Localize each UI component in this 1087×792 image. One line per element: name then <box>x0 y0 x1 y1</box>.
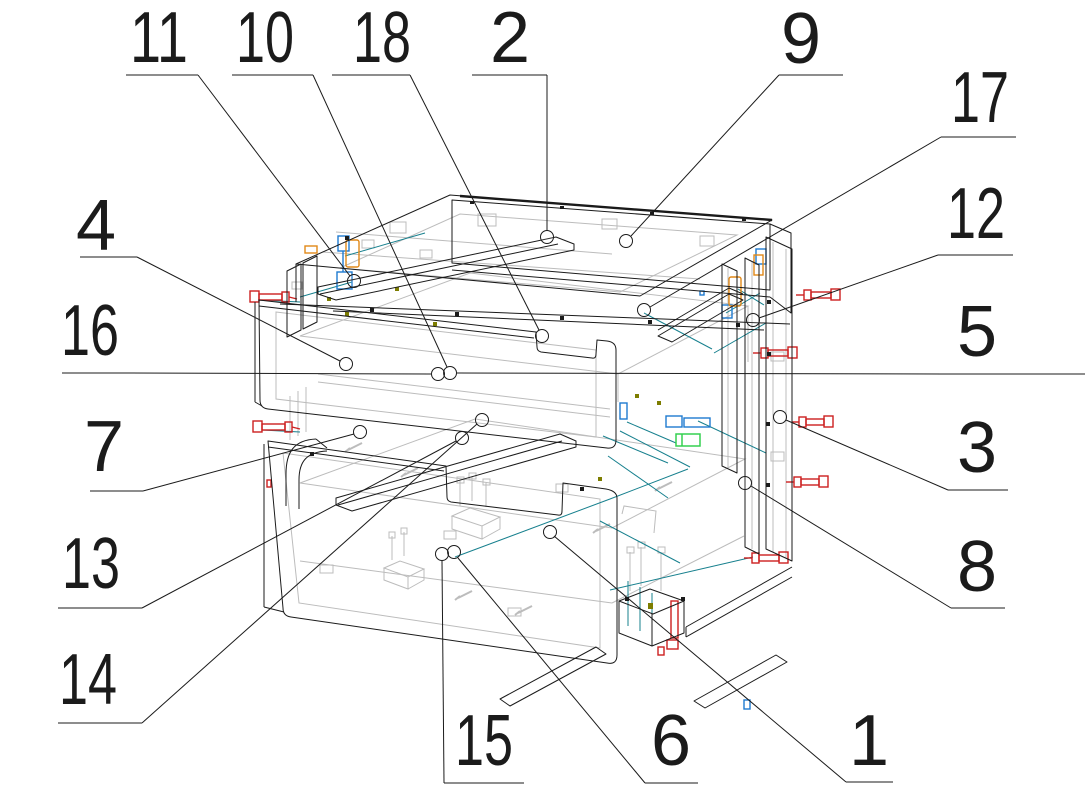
callout-14-number: 14 <box>59 640 117 720</box>
callout-3: 3 <box>774 408 1009 490</box>
callout-7-leader-line <box>143 434 354 491</box>
callout-8-target-circle <box>739 477 752 490</box>
handle-tube <box>286 439 327 509</box>
blue-fittings <box>337 236 766 709</box>
callout-16-number: 16 <box>61 291 119 371</box>
callout-4-number: 4 <box>76 186 116 266</box>
callout-15-number: 15 <box>455 701 513 781</box>
callout-12-target-circle <box>747 314 760 327</box>
callout-10-leader-line <box>313 75 447 367</box>
exploded-assembly-drawing: 123456789101112131415161718 <box>0 0 1087 792</box>
top-section <box>280 195 791 342</box>
callout-5-leader-line <box>457 373 945 374</box>
callout-5: 5 <box>457 292 1085 374</box>
bracket-red-icon <box>658 601 678 655</box>
screw-red-icon <box>250 291 297 302</box>
callout-8: 8 <box>739 477 1006 609</box>
callout-3-target-circle <box>774 411 787 424</box>
callout-14-target-circle <box>476 414 489 427</box>
callout-4-target-circle <box>340 358 353 371</box>
fitting-blue-icon <box>620 403 627 419</box>
callout-12-number: 12 <box>947 174 1005 254</box>
callout-6-number: 6 <box>651 701 691 781</box>
callout-7-number: 7 <box>84 407 124 487</box>
right-side-panel <box>722 237 792 561</box>
callout-17-leader-line <box>650 137 941 307</box>
callout-16-target-circle <box>432 368 445 381</box>
callout-15-target-circle <box>436 548 449 561</box>
callout-10-target-circle <box>444 367 457 380</box>
cabinet-structure <box>255 195 792 708</box>
callout-7-target-circle <box>354 426 367 439</box>
screw-red-icon <box>744 552 788 563</box>
callout-3-number: 3 <box>957 408 997 488</box>
callout-17-number: 17 <box>951 58 1009 138</box>
callout-15-leader-line <box>442 561 444 783</box>
bolt-blue-icon <box>666 416 682 427</box>
screw-red-icon <box>253 421 300 432</box>
fitting-orange-icon <box>305 246 317 253</box>
screw-red-icon <box>796 289 840 300</box>
fitting-green-icon <box>676 434 700 446</box>
callout-15: 15 <box>436 548 525 784</box>
middle-rail <box>336 434 576 511</box>
callout-1: 1 <box>544 526 894 783</box>
fitting-blue-icon <box>744 700 750 709</box>
callout-9-number: 9 <box>781 0 821 79</box>
callout-13-number: 13 <box>62 524 120 604</box>
callout-18-leader-line <box>410 75 539 330</box>
callout-2-number: 2 <box>490 0 530 78</box>
callout-1-target-circle <box>544 526 557 539</box>
callout-11-number: 11 <box>130 0 188 78</box>
callout-1-number: 1 <box>849 701 889 781</box>
callout-16: 16 <box>61 291 445 381</box>
callout-14-leader-line <box>142 424 477 723</box>
callout-10-number: 10 <box>236 0 294 78</box>
bottom-section <box>500 567 792 708</box>
callout-18-number: 18 <box>353 0 411 78</box>
callout-16-leader-line <box>130 373 431 374</box>
callout-layer: 123456789101112131415161718 <box>58 0 1085 783</box>
orange-fittings <box>305 240 763 306</box>
assembly-connector-lines <box>258 233 766 637</box>
callout-9-leader-line <box>631 75 779 236</box>
callout-5-number: 5 <box>957 292 997 372</box>
callout-4-leader-line <box>137 257 340 361</box>
green-fitting <box>676 434 700 446</box>
callout-9-target-circle <box>620 235 633 248</box>
fitting-red-icon <box>267 480 271 487</box>
drawing-page: 123456789101112131415161718 <box>0 0 1087 792</box>
callout-2-target-circle <box>541 231 554 244</box>
callout-17-target-circle <box>638 304 651 317</box>
callout-18-target-circle <box>536 330 549 343</box>
callout-8-number: 8 <box>957 527 997 607</box>
callout-8-leader-line <box>751 486 951 608</box>
fitting-orange-icon <box>729 277 741 306</box>
callout-6-target-circle <box>448 546 461 559</box>
callout-11-target-circle <box>348 275 361 288</box>
fitting-blue-icon <box>756 249 766 264</box>
bolt-blue-icon <box>684 418 710 427</box>
